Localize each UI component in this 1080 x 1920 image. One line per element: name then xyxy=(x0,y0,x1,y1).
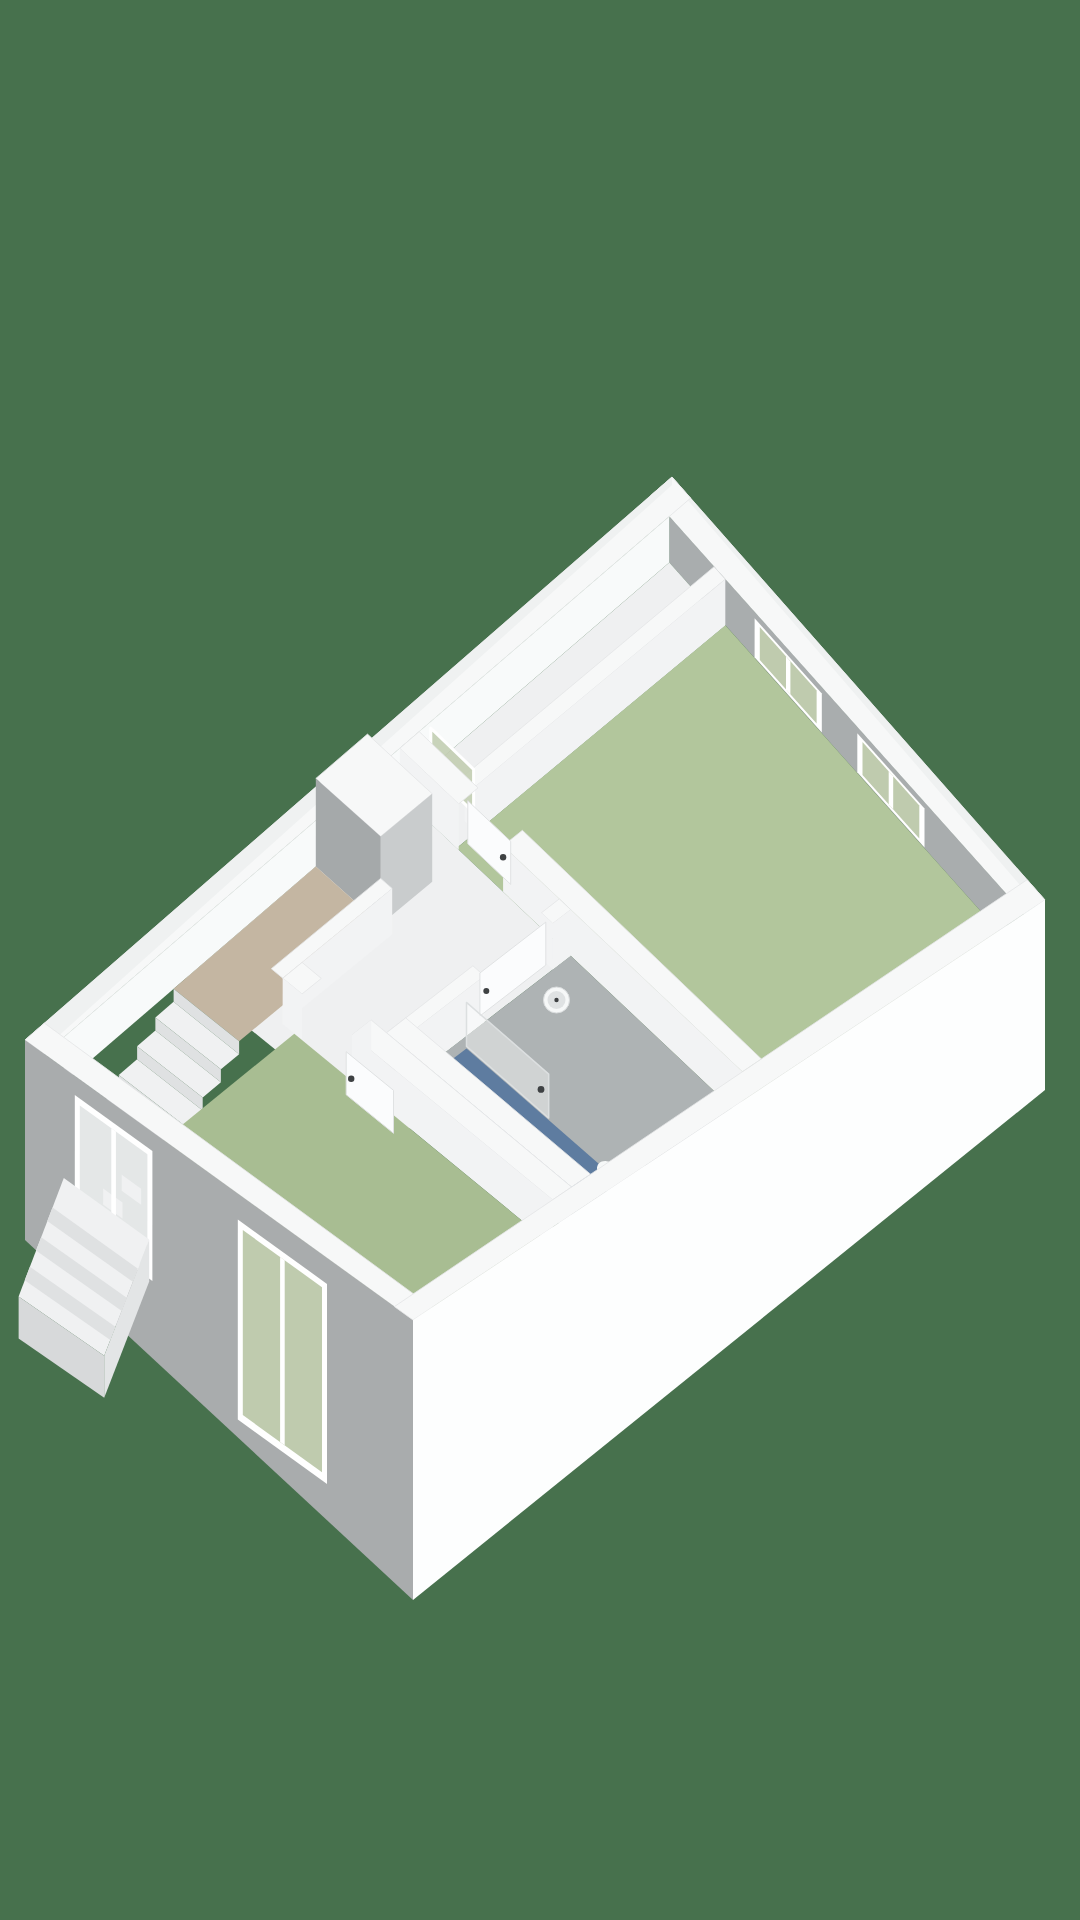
shower-screen-handle xyxy=(538,1086,545,1093)
door-bedroom-top-handle xyxy=(500,854,506,860)
door-bathroom-handle xyxy=(483,988,489,994)
window-bed1-right-mullion xyxy=(889,771,894,809)
floor-plan-stage xyxy=(0,0,1080,1920)
door-bedroom-bottom-handle xyxy=(348,1076,354,1082)
window-bed1-left-mullion xyxy=(786,656,790,694)
washbasin-drain xyxy=(554,998,558,1002)
floor-plan-3d-render xyxy=(0,0,1080,1920)
window-bed2-mullion xyxy=(280,1257,285,1445)
